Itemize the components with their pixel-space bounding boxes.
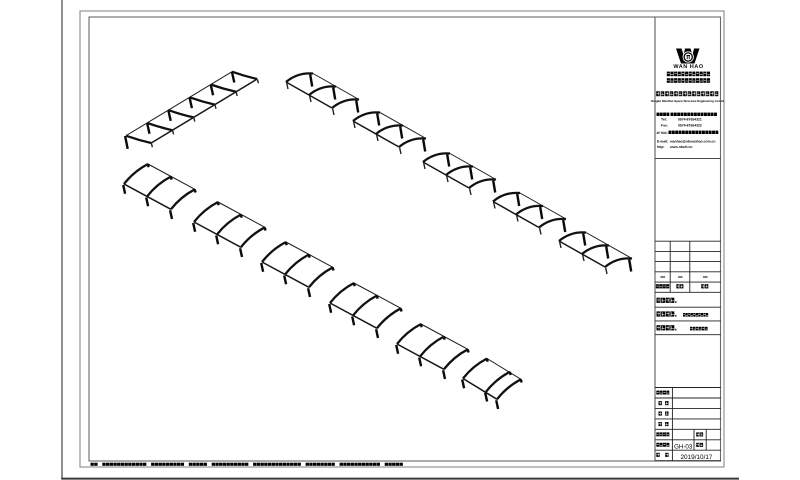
svg-text:WAN HAO: WAN HAO xyxy=(673,64,703,70)
svg-text:Tel:: Tel: xyxy=(661,118,667,122)
svg-text:E-mail:: E-mail: xyxy=(657,139,668,143)
svg-text:2F Bld:: 2F Bld: xyxy=(657,131,668,135)
svg-text:Ningbo WanHao Space Structure: Ningbo WanHao Space Structure Engineerin… xyxy=(651,99,724,103)
svg-text:Fax:: Fax: xyxy=(661,123,668,127)
svg-text:0574-87654322: 0574-87654322 xyxy=(678,123,702,127)
svg-text:GH-03: GH-03 xyxy=(674,443,693,450)
svg-text:http:: http: xyxy=(657,145,665,149)
svg-text:www.nbwh.cn: www.nbwh.cn xyxy=(669,145,692,149)
svg-text:wanhao@nbwanhao.com.cn: wanhao@nbwanhao.com.cn xyxy=(669,139,716,143)
svg-text:2019/10/17: 2019/10/17 xyxy=(681,454,713,461)
svg-text:0574-87654321: 0574-87654321 xyxy=(678,118,702,122)
